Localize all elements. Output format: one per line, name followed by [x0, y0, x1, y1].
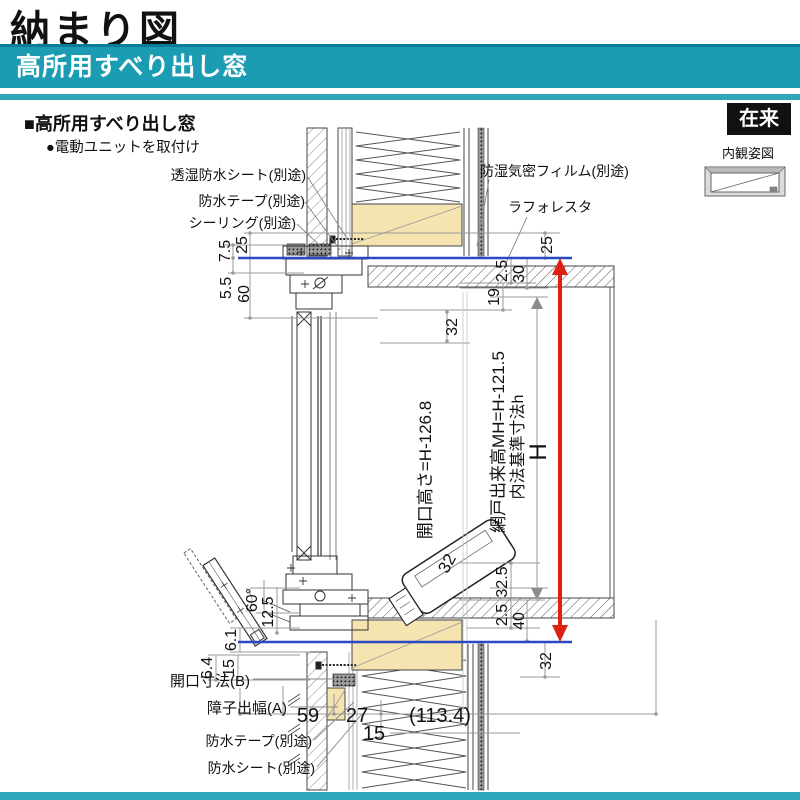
- dim-H: H: [525, 443, 552, 460]
- dim-113-4: (113.4): [409, 705, 471, 727]
- height-dimension-red: [552, 258, 568, 642]
- dim-opening-height: 開口高さ=H-126.8: [416, 401, 435, 539]
- dim-32-5: 32.5: [494, 566, 511, 597]
- leader-lines: [253, 176, 527, 767]
- label-film: 防湿気密フィルム(別途): [480, 163, 629, 179]
- section-drawing: 透湿防水シート(別途) 防水テープ(別途) シーリング(別途) 防湿気密フィルム…: [0, 0, 800, 800]
- dim-12-5: 12.5: [260, 596, 277, 627]
- label-sealing: シーリング(別途): [189, 215, 296, 231]
- dim-7-5: 7.5: [217, 240, 234, 262]
- glass-unit: [292, 312, 336, 560]
- dim-40: 40: [511, 612, 528, 630]
- dim-15-bottom: 15: [363, 723, 385, 745]
- label-sheet-bottom: 防水シート(別途): [208, 760, 315, 776]
- dim-15-left: 15: [221, 659, 238, 677]
- dim-screen-height: 網戸出来高MH=H-121.5: [489, 351, 508, 533]
- dim-32-below: 32: [538, 652, 555, 670]
- dim-5-5: 5.5: [218, 277, 235, 299]
- dim-19: 19: [486, 288, 503, 306]
- dim-60deg: 60°: [244, 588, 261, 612]
- label-tape-bottom: 防水テープ(別途): [206, 733, 312, 749]
- dim-6-4: 6.4: [199, 657, 216, 679]
- dim-2-5-bottom: 2.5: [494, 604, 511, 626]
- label-laforesta: ラフォレスタ: [508, 199, 592, 215]
- dim-6-1: 6.1: [223, 629, 240, 651]
- interior-casing-head: [368, 266, 614, 287]
- dim-30: 30: [511, 265, 528, 283]
- label-sheet-top: 透湿防水シート(別途): [171, 167, 306, 183]
- window-frame-sill: [262, 556, 368, 630]
- sealing-block: [333, 674, 355, 686]
- dim-32-head: 32: [444, 318, 461, 336]
- interior-wall-face: [610, 287, 614, 598]
- dim-2-5-top: 2.5: [494, 260, 511, 282]
- page-bottom-rule: [0, 792, 800, 800]
- dim-59: 59: [297, 705, 319, 727]
- label-shoji-a: 障子出幅(A): [207, 699, 287, 717]
- label-tape-top: 防水テープ(別途): [199, 193, 305, 209]
- dim-25-left: 25: [234, 236, 251, 254]
- dim-25-right: 25: [539, 236, 556, 254]
- dim-60: 60: [236, 285, 253, 303]
